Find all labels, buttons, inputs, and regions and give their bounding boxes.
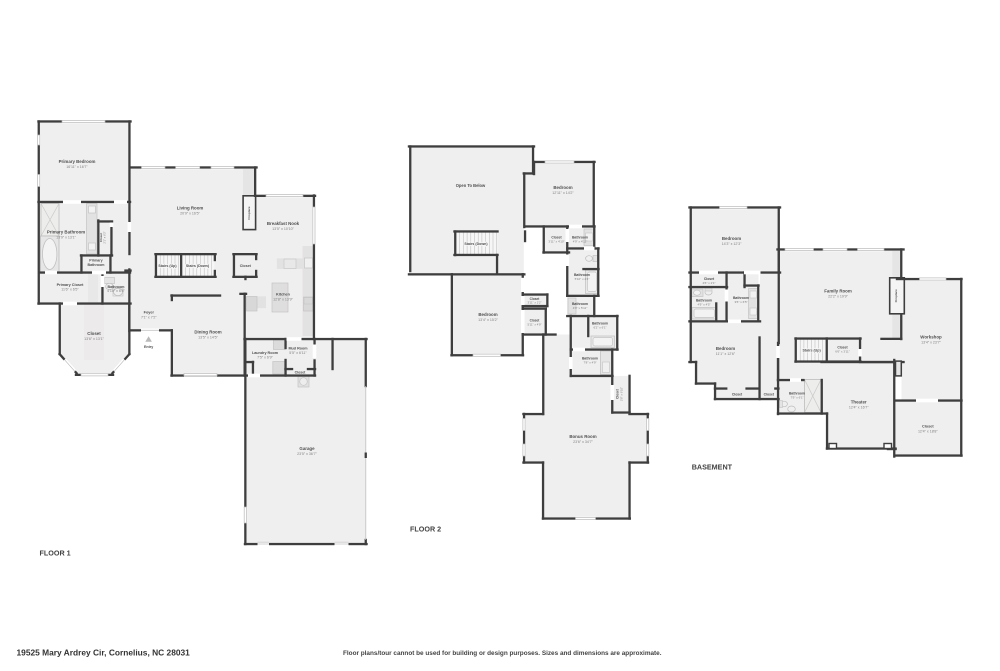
svg-text:6'6" x 3'11": 6'6" x 3'11" bbox=[835, 350, 850, 354]
svg-text:Closet: Closet bbox=[922, 425, 934, 429]
svg-text:Kitchen: Kitchen bbox=[276, 293, 291, 297]
svg-text:12'4" x 16'7": 12'4" x 16'7" bbox=[849, 405, 869, 409]
svg-text:5'11" x 4'9": 5'11" x 4'9" bbox=[527, 322, 541, 326]
svg-text:Stairs (Up): Stairs (Up) bbox=[158, 264, 177, 268]
svg-text:Bedroom: Bedroom bbox=[722, 236, 741, 241]
svg-text:Entry: Entry bbox=[144, 345, 153, 349]
svg-text:12'11" x 14'2": 12'11" x 14'2" bbox=[552, 191, 574, 195]
svg-text:Stairs (Down): Stairs (Down) bbox=[186, 264, 210, 268]
svg-text:Mud Room: Mud Room bbox=[288, 347, 308, 351]
svg-text:Bathroom: Bathroom bbox=[88, 263, 105, 267]
svg-text:Primary: Primary bbox=[89, 259, 102, 263]
svg-text:4'9" x 5'11": 4'9" x 5'11" bbox=[573, 306, 588, 310]
svg-text:Living Room: Living Room bbox=[177, 206, 204, 211]
svg-text:12'8" x 13'9": 12'8" x 13'9" bbox=[273, 297, 293, 301]
svg-text:FLOOR 2: FLOOR 2 bbox=[410, 525, 441, 534]
svg-text:Workshop: Workshop bbox=[920, 335, 942, 340]
svg-text:Stairs (Down): Stairs (Down) bbox=[464, 242, 488, 246]
svg-text:Breakfast Nook: Breakfast Nook bbox=[267, 221, 300, 226]
svg-text:22'2" x 19'9": 22'2" x 19'9" bbox=[828, 294, 848, 298]
svg-text:Floor plans/tour cannot be use: Floor plans/tour cannot be used for buil… bbox=[343, 650, 662, 657]
svg-text:16'11" x 16'7": 16'11" x 16'7" bbox=[66, 165, 88, 169]
svg-text:Fireplace: Fireplace bbox=[247, 206, 251, 220]
svg-text:Closet: Closet bbox=[732, 393, 743, 397]
svg-text:Bedroom: Bedroom bbox=[716, 346, 735, 351]
svg-text:4'10" x 6'8": 4'10" x 6'8" bbox=[107, 289, 125, 293]
svg-text:2'1" x 6'3": 2'1" x 6'3" bbox=[103, 231, 107, 243]
svg-text:4'9" x 4'11": 4'9" x 4'11" bbox=[573, 240, 588, 244]
svg-text:5'5" x 6'11": 5'5" x 6'11" bbox=[289, 351, 307, 355]
svg-text:19525 Mary Ardrey Cir, Corneli: 19525 Mary Ardrey Cir, Cornelius, NC 280… bbox=[17, 648, 191, 658]
svg-text:Bedroom: Bedroom bbox=[478, 312, 497, 317]
svg-text:Primary Bedroom: Primary Bedroom bbox=[59, 159, 96, 164]
svg-text:Primary Closet: Primary Closet bbox=[57, 283, 85, 287]
svg-text:Open To Below: Open To Below bbox=[456, 183, 486, 188]
svg-text:13'9" x 13'1": 13'9" x 13'1" bbox=[56, 235, 76, 239]
svg-text:Closet: Closet bbox=[295, 370, 307, 374]
svg-text:13'5" x 14'5": 13'5" x 14'5" bbox=[198, 335, 218, 339]
svg-text:13'6" x 13'1": 13'6" x 13'1" bbox=[84, 337, 104, 341]
svg-text:12'4" x 18'8": 12'4" x 18'8" bbox=[918, 429, 938, 433]
svg-text:23'6" x 34'7": 23'6" x 34'7" bbox=[573, 440, 593, 444]
svg-text:BASEMENT: BASEMENT bbox=[692, 463, 733, 472]
svg-text:20'9" x 16'5": 20'9" x 16'5" bbox=[180, 211, 200, 215]
svg-text:2'8" x 6'10": 2'8" x 6'10" bbox=[620, 387, 624, 401]
svg-text:5'10" x 4'4": 5'10" x 4'4" bbox=[575, 277, 590, 281]
svg-text:Stairs (Up): Stairs (Up) bbox=[803, 349, 822, 353]
svg-text:23'5" x 36'7": 23'5" x 36'7" bbox=[297, 452, 317, 456]
svg-text:Closet: Closet bbox=[240, 264, 252, 268]
svg-text:Closet: Closet bbox=[764, 393, 775, 397]
svg-text:13'4" x 15'2": 13'4" x 15'2" bbox=[478, 318, 498, 322]
svg-text:7'9" x 6'1": 7'9" x 6'1" bbox=[790, 396, 803, 400]
svg-text:Family Room: Family Room bbox=[824, 289, 852, 294]
svg-text:13'4" x 23'7": 13'4" x 23'7" bbox=[921, 340, 941, 344]
svg-text:4'9" x 4'5": 4'9" x 4'5" bbox=[697, 303, 710, 307]
svg-text:Primary Bathroom: Primary Bathroom bbox=[47, 230, 85, 235]
svg-text:13'5" x 10'10": 13'5" x 10'10" bbox=[272, 227, 294, 231]
svg-text:Fireplace: Fireplace bbox=[894, 289, 898, 303]
svg-text:7'1" x 7'2": 7'1" x 7'2" bbox=[141, 315, 157, 319]
svg-text:Bedroom: Bedroom bbox=[553, 185, 572, 190]
svg-text:Bonus Room: Bonus Room bbox=[569, 434, 596, 439]
svg-text:14'3" x 12'3": 14'3" x 12'3" bbox=[722, 242, 742, 246]
svg-text:Foyer: Foyer bbox=[144, 311, 155, 315]
svg-text:11'6" x 6'5": 11'6" x 6'5" bbox=[61, 287, 79, 291]
svg-text:3'11" x 4'10": 3'11" x 4'10" bbox=[548, 240, 564, 244]
svg-text:Laundry Room: Laundry Room bbox=[252, 351, 279, 355]
svg-text:FLOOR 1: FLOOR 1 bbox=[40, 549, 71, 558]
svg-text:Garage: Garage bbox=[299, 446, 315, 451]
svg-text:7'5" x 6'9": 7'5" x 6'9" bbox=[257, 355, 273, 359]
svg-text:11'1" x 12'6": 11'1" x 12'6" bbox=[716, 352, 736, 356]
svg-text:Dining Room: Dining Room bbox=[194, 330, 221, 335]
svg-text:4'6" x 2'1": 4'6" x 2'1" bbox=[702, 281, 715, 285]
svg-text:7'8" x 4'9": 7'8" x 4'9" bbox=[583, 361, 596, 365]
svg-text:Closet: Closet bbox=[87, 331, 101, 336]
svg-text:Theater: Theater bbox=[851, 400, 867, 405]
svg-text:3'6" x 6'5": 3'6" x 6'5" bbox=[734, 300, 747, 304]
svg-text:3'11" x 2'2": 3'11" x 2'2" bbox=[527, 301, 541, 305]
svg-text:6'2" x 6'1": 6'2" x 6'1" bbox=[593, 326, 606, 330]
